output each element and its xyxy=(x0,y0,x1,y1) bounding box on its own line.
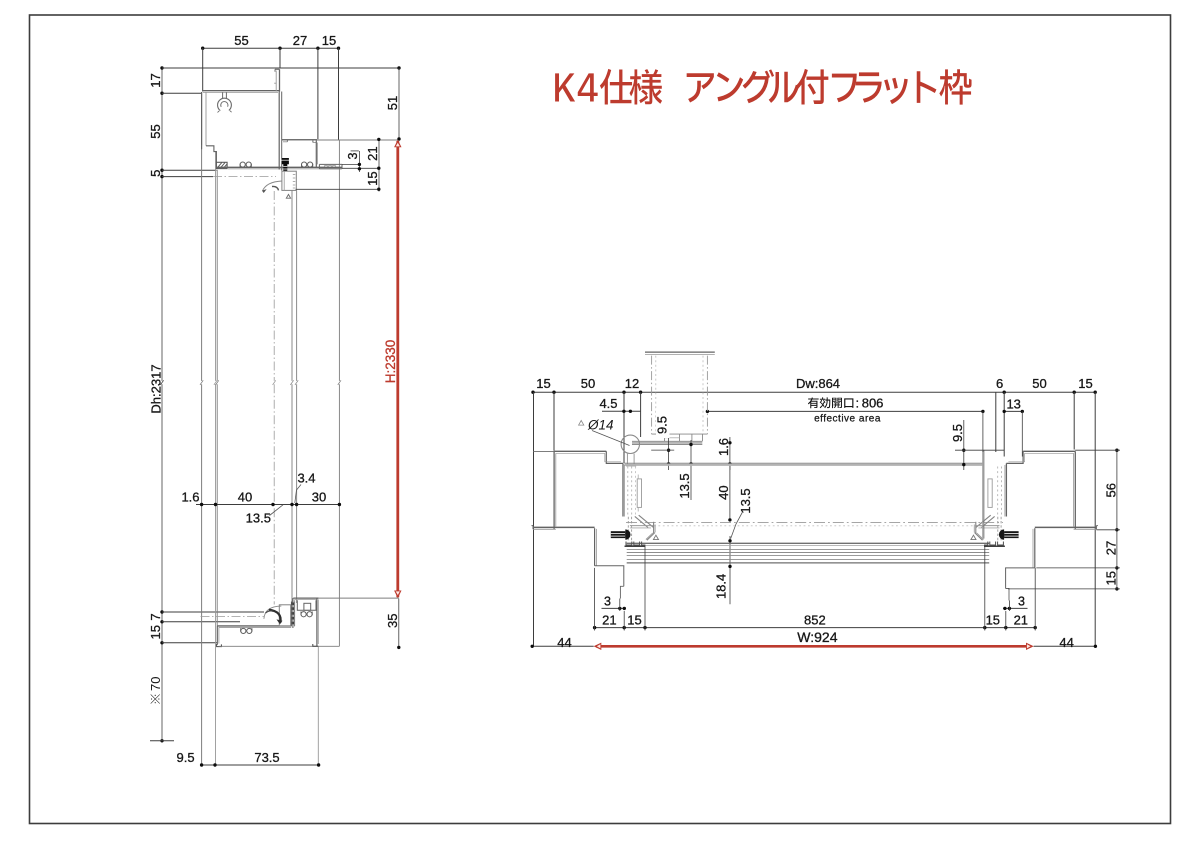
svg-text:15: 15 xyxy=(148,625,163,639)
svg-text:15: 15 xyxy=(627,612,641,627)
svg-text:3: 3 xyxy=(1018,594,1025,608)
svg-text:Dh:2317: Dh:2317 xyxy=(149,364,164,413)
svg-text:56: 56 xyxy=(1103,483,1118,497)
svg-text:4.5: 4.5 xyxy=(599,396,617,411)
svg-text:12: 12 xyxy=(625,376,639,391)
svg-text:27: 27 xyxy=(1103,541,1118,555)
svg-text:73.5: 73.5 xyxy=(254,750,279,765)
svg-text:55: 55 xyxy=(148,124,163,138)
svg-text:50: 50 xyxy=(581,376,595,391)
svg-text:15: 15 xyxy=(1103,571,1118,585)
svg-text:13.5: 13.5 xyxy=(738,488,753,513)
svg-text:70: 70 xyxy=(148,677,163,691)
svg-text:Ø14: Ø14 xyxy=(587,418,614,433)
svg-text:17: 17 xyxy=(148,73,163,87)
svg-text:5: 5 xyxy=(148,170,163,177)
svg-text:W:924: W:924 xyxy=(797,629,837,645)
svg-text:50: 50 xyxy=(1032,376,1046,391)
svg-text:40: 40 xyxy=(716,485,731,499)
svg-text:13: 13 xyxy=(1006,397,1020,412)
svg-text:3.4: 3.4 xyxy=(297,470,315,485)
svg-text:15: 15 xyxy=(1078,376,1092,391)
svg-text:18.4: 18.4 xyxy=(714,574,729,599)
svg-text:9.5: 9.5 xyxy=(950,424,965,442)
svg-text:30: 30 xyxy=(312,489,326,504)
svg-text:15: 15 xyxy=(986,612,1000,627)
svg-text:9.5: 9.5 xyxy=(655,416,670,434)
svg-text:35: 35 xyxy=(385,614,400,628)
svg-text:40: 40 xyxy=(238,489,252,504)
svg-text:3: 3 xyxy=(346,152,360,159)
svg-text:H:2330: H:2330 xyxy=(383,340,398,384)
svg-text:3: 3 xyxy=(604,594,611,608)
svg-text:15: 15 xyxy=(365,171,380,185)
svg-text:852: 852 xyxy=(804,612,826,627)
svg-text:13.5: 13.5 xyxy=(677,473,692,498)
svg-text:44: 44 xyxy=(1059,635,1073,650)
svg-text:27: 27 xyxy=(293,33,307,48)
svg-text:1.6: 1.6 xyxy=(181,489,199,504)
svg-text:effective area: effective area xyxy=(814,413,881,424)
svg-text:55: 55 xyxy=(234,33,248,48)
svg-text:51: 51 xyxy=(385,96,400,110)
svg-text:13.5: 13.5 xyxy=(246,511,271,526)
svg-text:21: 21 xyxy=(1014,612,1028,627)
svg-text:9.5: 9.5 xyxy=(177,750,195,765)
svg-text:15: 15 xyxy=(536,376,550,391)
svg-text:21: 21 xyxy=(365,146,380,160)
svg-text:15: 15 xyxy=(322,33,336,48)
svg-text:: 806: : 806 xyxy=(856,395,884,410)
svg-text:44: 44 xyxy=(557,635,571,650)
svg-text:6: 6 xyxy=(996,376,1003,391)
svg-text:Dw:864: Dw:864 xyxy=(796,376,840,391)
svg-text:1.6: 1.6 xyxy=(716,438,731,456)
svg-text:7: 7 xyxy=(148,613,163,620)
svg-text:21: 21 xyxy=(602,612,616,627)
